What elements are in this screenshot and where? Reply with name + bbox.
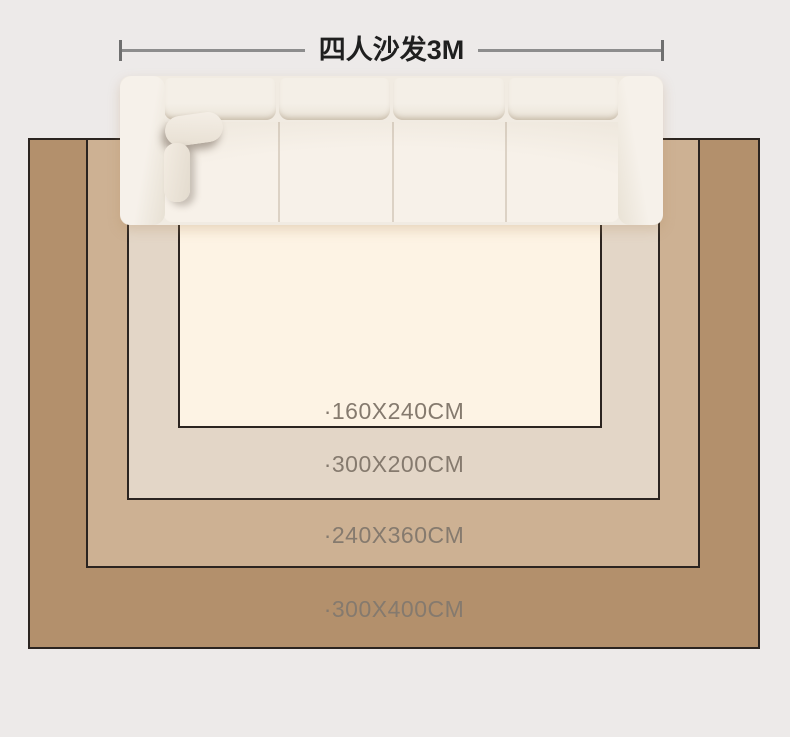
sofa-armrest-right bbox=[618, 76, 663, 225]
seat-seam bbox=[505, 122, 507, 222]
back-cushion-2 bbox=[279, 78, 391, 120]
dimension-tick-right bbox=[661, 40, 664, 61]
sofa-back-cushions bbox=[164, 78, 619, 120]
rug-160x240 bbox=[178, 219, 602, 428]
back-cushion-1 bbox=[164, 78, 276, 120]
rug-size-guide-diagram: ·160X240CM ·300X200CM ·240X360CM ·300X40… bbox=[0, 0, 790, 737]
back-cushion-3 bbox=[393, 78, 505, 120]
sofa-top-view bbox=[120, 76, 663, 225]
dimension-line-left bbox=[122, 49, 305, 52]
back-cushion-4 bbox=[508, 78, 620, 120]
sofa-width-label: 四人沙发3M bbox=[319, 38, 465, 62]
rug-size-label-300x400: ·300X400CM bbox=[28, 596, 760, 622]
sofa-lumbar-cushion bbox=[164, 143, 190, 202]
rug-size-label-300x200: ·300X200CM bbox=[28, 451, 760, 477]
seat-seam bbox=[392, 122, 394, 222]
seat-seam bbox=[278, 122, 280, 222]
sofa-seat bbox=[164, 122, 619, 222]
sofa-armrest-left bbox=[120, 76, 165, 225]
sofa-width-dimension: 四人沙发3M bbox=[119, 38, 664, 62]
rug-size-label-160x240: ·160X240CM bbox=[28, 398, 760, 424]
dimension-line-right bbox=[478, 49, 661, 52]
rug-size-label-240x360: ·240X360CM bbox=[28, 522, 760, 548]
